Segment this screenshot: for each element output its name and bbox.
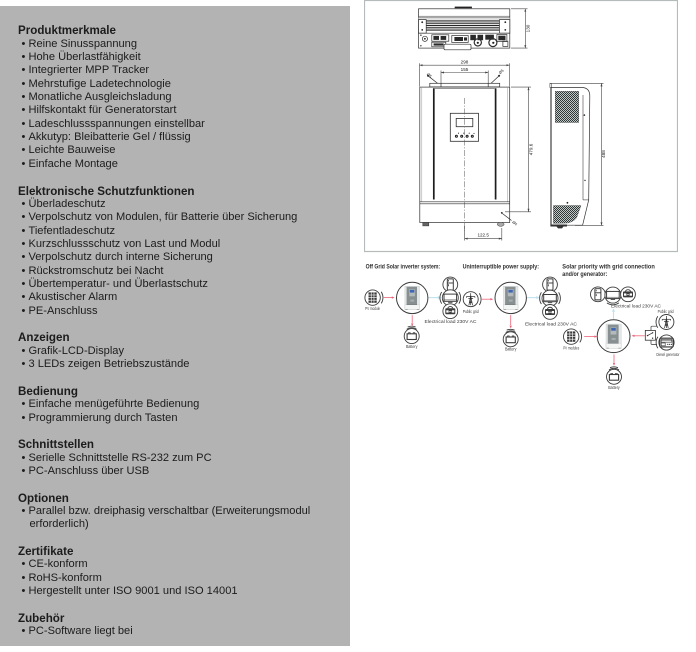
- svg-text:Diesel generator: Diesel generator: [656, 352, 679, 357]
- svg-text:Public grid: Public grid: [658, 309, 675, 314]
- svg-text:PV modules: PV modules: [563, 345, 579, 350]
- svg-text:Battery: Battery: [608, 385, 620, 390]
- svg-text:Battery: Battery: [505, 346, 517, 351]
- svg-text:Electrical load 230V AC: Electrical load 230V AC: [525, 321, 577, 326]
- svg-text:Electrical load 230V AC: Electrical load 230V AC: [425, 319, 477, 324]
- svg-text:488: 488: [601, 150, 606, 158]
- svg-text:and/or generator:: and/or generator:: [562, 271, 607, 278]
- svg-text:Off Grid Solar inverter system: Off Grid Solar inverter system:: [366, 263, 441, 270]
- svg-text:155: 155: [461, 67, 469, 72]
- svg-text:122.5: 122.5: [477, 233, 489, 238]
- svg-text:479.6: 479.6: [529, 143, 534, 155]
- svg-text:Solar priority with grid conne: Solar priority with grid connection: [562, 263, 655, 270]
- svg-text:298: 298: [461, 60, 469, 65]
- svg-text:Uninterruptible power supply:: Uninterruptible power supply:: [463, 263, 539, 270]
- svg-text:Electrical load 230V AC: Electrical load 230V AC: [611, 304, 661, 309]
- svg-text:Public grid: Public grid: [463, 309, 480, 314]
- svg-text:130: 130: [526, 24, 531, 32]
- svg-text:PV module: PV module: [365, 306, 381, 311]
- svg-text:Battery: Battery: [406, 344, 418, 349]
